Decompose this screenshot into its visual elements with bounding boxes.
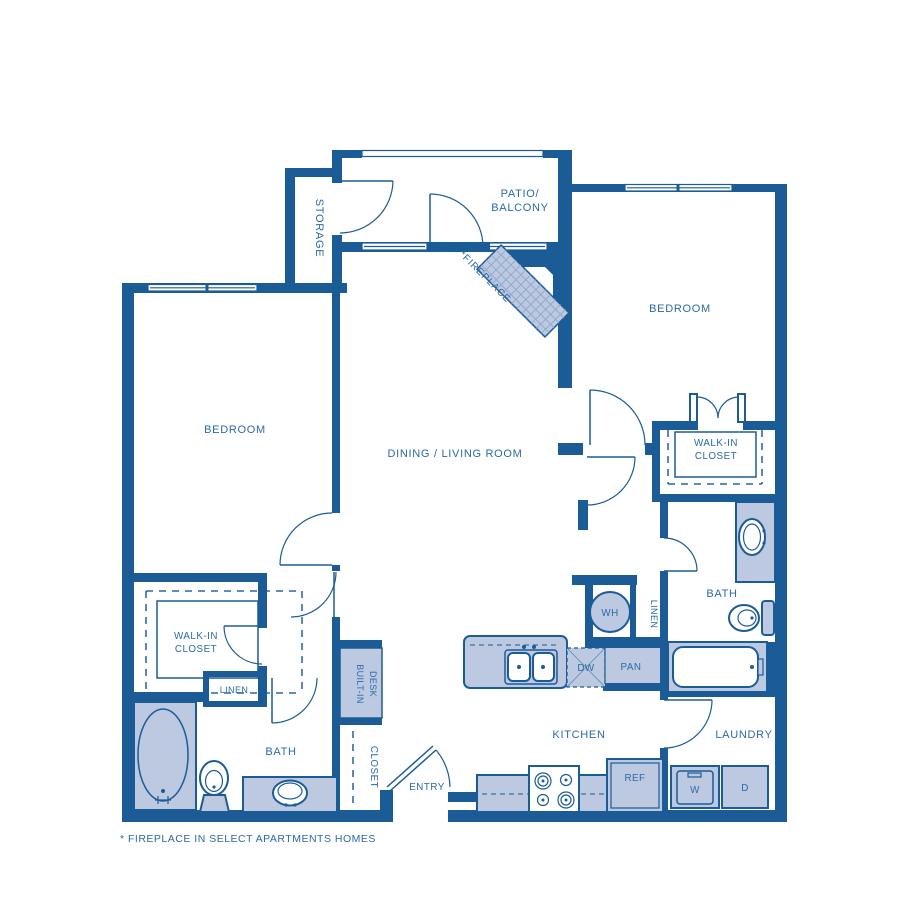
bath-left-label: BATH (265, 746, 296, 758)
bath-right-door (664, 538, 697, 571)
walkin-left-label-line2: CLOSET (175, 644, 217, 655)
toilet-right (729, 601, 774, 635)
patio-label-line1: PATIO/ (501, 188, 540, 200)
bedroom-right-label: BEDROOM (649, 303, 711, 315)
walkin-left-rod (146, 591, 302, 693)
patio-label-line2: BALCONY (491, 202, 548, 214)
bedroom-left-door (280, 513, 332, 565)
bath-left-fixtures (134, 702, 337, 812)
ref-label: REF (624, 773, 645, 784)
floorplan-svg: STORAGE PATIO/ BALCONY *FIREPLACE BEDROO… (0, 0, 900, 900)
kitchen-counter-sink (464, 636, 567, 688)
linen-left-label: LINEN (220, 685, 249, 695)
storage-door (340, 181, 393, 233)
window-bedroom-left (148, 285, 257, 292)
footnote: * FIREPLACE IN SELECT APARTMENTS HOMES (120, 833, 376, 845)
patio-door (430, 194, 483, 247)
refrigerator (607, 759, 663, 812)
hall-left-door (291, 572, 336, 617)
vanity-right (736, 502, 775, 582)
pan-label: PAN (621, 662, 642, 673)
builtin-desk-label-line2: DESK (368, 671, 378, 697)
storage-label: STORAGE (313, 199, 325, 258)
window-patio-right (485, 243, 547, 250)
walkin-left-door (224, 626, 262, 664)
bath-right-label: BATH (706, 588, 737, 600)
windows (148, 151, 732, 292)
garden-tub-left (134, 702, 196, 810)
entry-closet-label: CLOSET (368, 746, 379, 788)
bathtub-right (668, 642, 767, 692)
laundry-door (664, 700, 712, 748)
bedroom-left-label: BEDROOM (204, 424, 266, 436)
wh-label: WH (601, 608, 618, 619)
exterior-walls (122, 150, 787, 822)
laundry-fixtures (671, 766, 768, 808)
dryer-label: D (741, 783, 749, 794)
kitchen-label: KITCHEN (552, 729, 605, 741)
walkin-right-label-line1: WALK-IN (694, 438, 738, 449)
entry-label: ENTRY (409, 782, 445, 793)
floorplan-page: STORAGE PATIO/ BALCONY *FIREPLACE BEDROO… (0, 0, 900, 900)
bath-left-door (272, 678, 317, 723)
bedroom-right-door (590, 390, 645, 445)
laundry-label: LAUNDRY (715, 729, 772, 741)
toilet-left (200, 761, 229, 812)
walkin-right-french-doors (690, 394, 745, 422)
vanity-left (243, 777, 337, 812)
window-bedroom-right (625, 185, 732, 192)
interior-walls (125, 293, 775, 810)
closet-rods (146, 430, 762, 807)
builtin-desk-label-line1: BUILT-IN (355, 664, 365, 704)
washer-label: W (690, 785, 700, 796)
walkin-left-label-line1: WALK-IN (174, 631, 218, 642)
walkin-right-label-line2: CLOSET (695, 451, 737, 462)
dining-living-label: DINING / LIVING ROOM (387, 448, 522, 460)
patio-railing (362, 151, 543, 157)
linen-right-label: LINEN (649, 600, 659, 629)
hall-right-door (587, 457, 635, 505)
dw-label: DW (577, 663, 595, 674)
stove (529, 766, 579, 812)
window-patio-left (362, 243, 427, 250)
